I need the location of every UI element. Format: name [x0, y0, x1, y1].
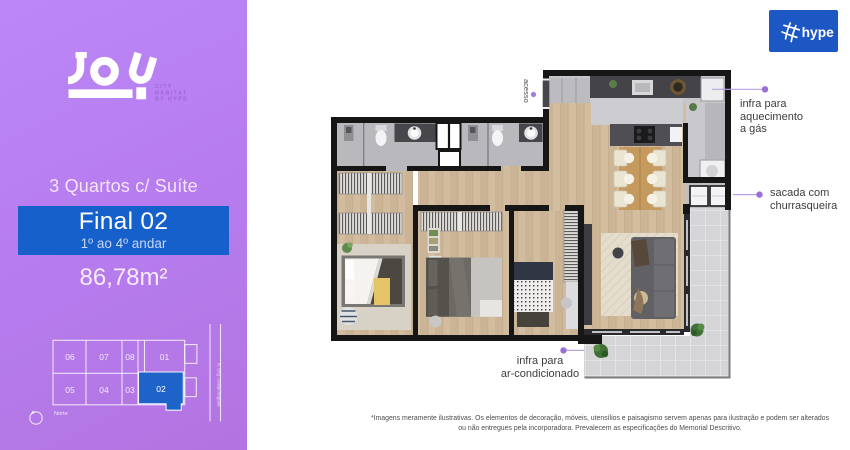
svg-text:acesso: acesso — [522, 79, 531, 103]
